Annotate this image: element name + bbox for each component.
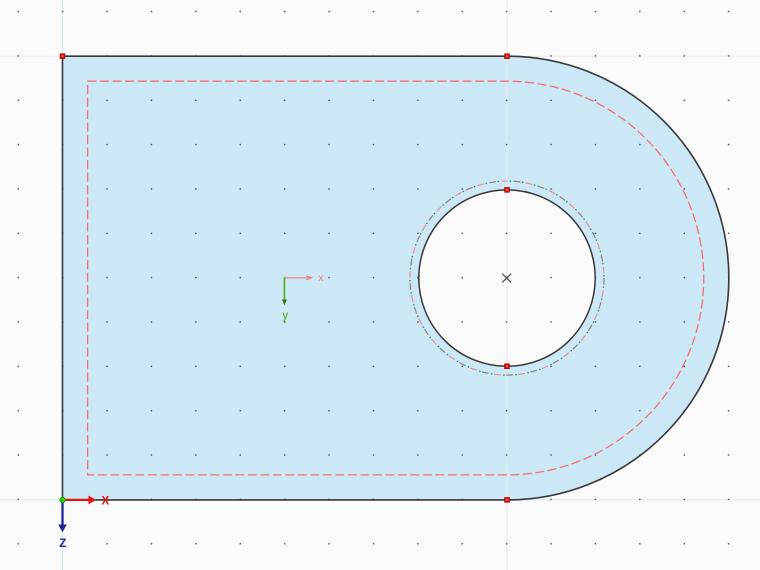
svg-text:x: x — [318, 272, 324, 284]
svg-text:X: X — [101, 495, 109, 507]
svg-text:Z: Z — [59, 538, 66, 550]
svg-text:y: y — [282, 310, 288, 322]
